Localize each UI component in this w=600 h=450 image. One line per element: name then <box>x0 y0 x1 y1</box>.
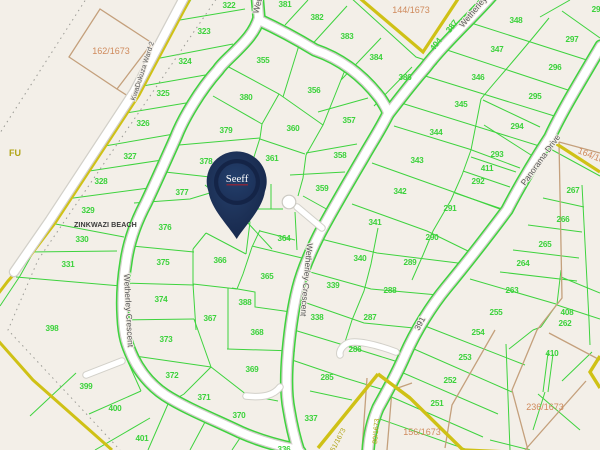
svg-text:375: 375 <box>156 258 170 267</box>
svg-text:384: 384 <box>369 53 383 62</box>
svg-text:398: 398 <box>45 324 59 333</box>
svg-text:289: 289 <box>403 258 417 267</box>
svg-text:366: 366 <box>213 256 227 265</box>
svg-text:255: 255 <box>489 308 503 317</box>
svg-text:285: 285 <box>320 373 334 382</box>
svg-text:344: 344 <box>429 128 443 137</box>
svg-text:29: 29 <box>592 5 600 14</box>
svg-text:291: 291 <box>443 204 457 213</box>
svg-text:330: 330 <box>75 235 89 244</box>
svg-text:297: 297 <box>565 35 579 44</box>
svg-text:295: 295 <box>528 92 542 101</box>
svg-text:329: 329 <box>81 206 95 215</box>
svg-text:293: 293 <box>490 150 504 159</box>
svg-text:346: 346 <box>471 73 485 82</box>
svg-text:359: 359 <box>315 184 329 193</box>
svg-text:381: 381 <box>278 0 292 9</box>
svg-text:382: 382 <box>310 13 324 22</box>
svg-text:144/1673: 144/1673 <box>392 5 430 15</box>
svg-text:377: 377 <box>175 188 189 197</box>
svg-text:400: 400 <box>108 404 122 413</box>
svg-text:368: 368 <box>250 328 264 337</box>
svg-text:367: 367 <box>203 314 217 323</box>
svg-text:372: 372 <box>165 371 179 380</box>
svg-text:342: 342 <box>393 187 407 196</box>
svg-text:262: 262 <box>558 319 572 328</box>
svg-text:365: 365 <box>260 272 274 281</box>
svg-text:343: 343 <box>410 156 424 165</box>
svg-text:339: 339 <box>326 281 340 290</box>
svg-text:401: 401 <box>135 434 149 443</box>
svg-text:253: 253 <box>458 353 472 362</box>
svg-text:ZINKWAZI BEACH: ZINKWAZI BEACH <box>74 221 137 229</box>
svg-text:338: 338 <box>310 313 324 322</box>
svg-text:323: 323 <box>197 27 211 36</box>
svg-text:290: 290 <box>425 233 439 242</box>
svg-text:386: 386 <box>398 73 412 82</box>
svg-text:340: 340 <box>353 254 367 263</box>
svg-text:328: 328 <box>94 177 108 186</box>
svg-text:252: 252 <box>443 376 457 385</box>
svg-text:378: 378 <box>199 157 213 166</box>
svg-text:Seeff: Seeff <box>226 173 249 185</box>
svg-text:360: 360 <box>286 124 300 133</box>
svg-text:265: 265 <box>538 240 552 249</box>
svg-text:348: 348 <box>509 16 523 25</box>
svg-text:399: 399 <box>79 382 93 391</box>
svg-text:254: 254 <box>471 328 485 337</box>
svg-text:410: 410 <box>545 349 559 358</box>
svg-text:236/1673: 236/1673 <box>526 402 564 412</box>
svg-text:FU: FU <box>9 148 21 158</box>
svg-text:337: 337 <box>304 414 318 423</box>
svg-text:324: 324 <box>178 57 192 66</box>
svg-text:336: 336 <box>277 445 291 450</box>
svg-text:369: 369 <box>245 365 259 374</box>
svg-text:388: 388 <box>238 298 252 307</box>
svg-text:264: 264 <box>516 259 530 268</box>
svg-text:286: 286 <box>348 345 362 354</box>
svg-text:408: 408 <box>560 308 574 317</box>
svg-text:373: 373 <box>159 335 173 344</box>
svg-text:347: 347 <box>490 45 504 54</box>
svg-text:371: 371 <box>197 393 211 402</box>
svg-text:294: 294 <box>510 122 524 131</box>
svg-text:376: 376 <box>158 223 172 232</box>
svg-text:356: 356 <box>307 86 321 95</box>
svg-text:411: 411 <box>481 164 494 173</box>
svg-text:345: 345 <box>454 100 468 109</box>
svg-text:325: 325 <box>156 89 170 98</box>
svg-text:322: 322 <box>222 1 236 10</box>
svg-text:364: 364 <box>277 234 291 243</box>
svg-text:361: 361 <box>265 154 279 163</box>
svg-text:288: 288 <box>383 286 397 295</box>
svg-text:326: 326 <box>136 119 150 128</box>
svg-text:370: 370 <box>232 411 246 420</box>
svg-text:341: 341 <box>368 218 382 227</box>
svg-text:357: 357 <box>342 116 356 125</box>
svg-text:287: 287 <box>363 313 377 322</box>
svg-text:162/1673: 162/1673 <box>92 46 130 56</box>
svg-text:296: 296 <box>548 63 562 72</box>
svg-text:156/1673: 156/1673 <box>403 427 441 437</box>
svg-text:380: 380 <box>239 93 253 102</box>
svg-text:374: 374 <box>154 295 168 304</box>
svg-text:331: 331 <box>61 260 75 269</box>
svg-text:355: 355 <box>256 56 270 65</box>
svg-text:358: 358 <box>333 151 347 160</box>
svg-text:251: 251 <box>430 399 444 408</box>
svg-text:266: 266 <box>556 215 570 224</box>
svg-text:263: 263 <box>505 286 519 295</box>
svg-text:292: 292 <box>471 177 485 186</box>
svg-text:383: 383 <box>340 32 354 41</box>
svg-text:327: 327 <box>123 152 137 161</box>
svg-text:379: 379 <box>219 126 233 135</box>
svg-text:267: 267 <box>566 186 580 195</box>
